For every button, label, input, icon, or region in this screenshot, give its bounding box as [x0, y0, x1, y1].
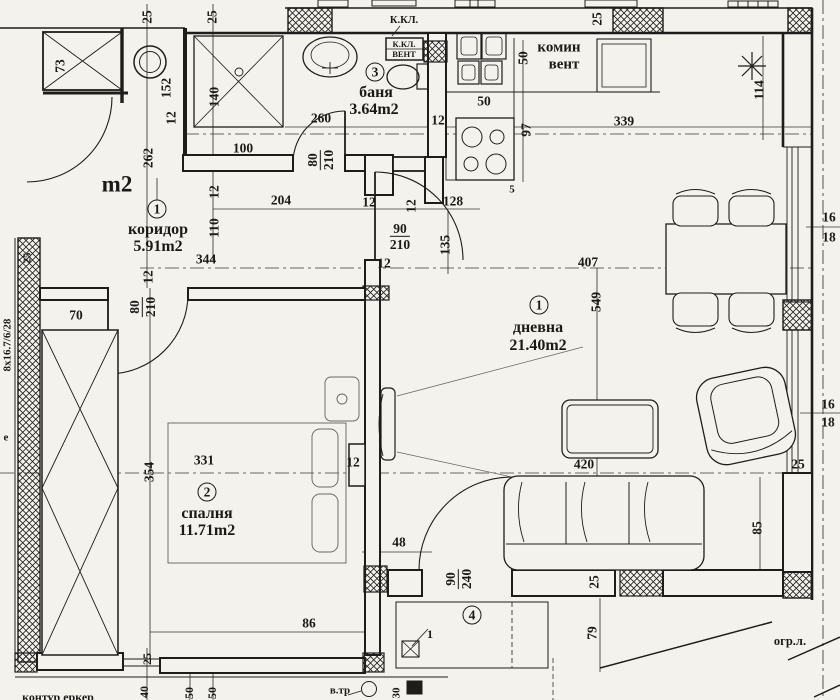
dim-50: 50: [477, 94, 491, 108]
level-16: 16: [822, 210, 836, 224]
dim-420: 420: [574, 457, 594, 471]
dim-100: 100: [233, 141, 253, 155]
room-number-living: 1: [530, 296, 549, 315]
room-label-bedroom: спалня: [181, 506, 232, 522]
dim-25: 25: [140, 10, 154, 24]
dim-50: 50: [183, 687, 195, 699]
dim-114: 114: [752, 80, 766, 100]
dim-25: 25: [141, 653, 153, 665]
room-label-living: дневна: [513, 320, 563, 336]
dim-73: 73: [53, 59, 67, 73]
dim-549: 549: [589, 292, 603, 312]
door-dim-80-210: 80210: [306, 150, 336, 170]
ref-1: 1: [427, 628, 433, 640]
annotation-komin: комин: [537, 41, 580, 56]
dim-260: 260: [311, 111, 331, 125]
dim-135: 135: [438, 235, 452, 255]
door-dim-80-210: 80210: [128, 297, 158, 317]
dim-48: 48: [392, 535, 406, 549]
dim-50: 50: [516, 51, 530, 65]
stair-spec: 8х16.7/6/28: [3, 319, 14, 372]
dim-152: 152: [159, 78, 173, 98]
dim-25: 25: [590, 12, 604, 26]
level-18: 18: [821, 415, 835, 429]
room-number-bedroom: 2: [198, 483, 217, 502]
dim-25: 25: [587, 575, 601, 589]
dim-12: 12: [164, 111, 178, 125]
dim-50: 50: [206, 687, 218, 699]
dim-331: 331: [194, 453, 214, 467]
dim-344: 344: [196, 252, 216, 266]
dim-40: 40: [138, 686, 150, 698]
dim-12: 12: [346, 455, 360, 469]
dim-5: 5: [509, 185, 515, 196]
dim-25: 25: [791, 457, 805, 471]
annotation-ogr-l: огр.л.: [774, 635, 806, 648]
room-area-bath: 3.64m2: [349, 102, 398, 118]
room-area-bedroom: 11.71m2: [179, 523, 235, 539]
annotation-vent-box: ВЕНТ: [392, 50, 416, 59]
dim-70: 70: [69, 308, 83, 322]
floorplan: 25257315214012100262m22603баня3.64m2К.КЛ…: [0, 0, 840, 700]
room-number-corridor: 1: [148, 200, 167, 219]
dim-339: 339: [614, 114, 634, 128]
dim-30: 30: [392, 688, 403, 699]
room-number-terrace: 4: [463, 606, 482, 625]
dim-12: 12: [404, 199, 418, 213]
dim-85: 85: [750, 521, 764, 535]
dim-204: 204: [271, 193, 291, 207]
text-partial: е: [4, 433, 9, 444]
dim-12: 12: [207, 185, 221, 199]
dim-128: 128: [443, 194, 463, 208]
dim-25: 25: [205, 10, 219, 24]
door-dim-90-210: 90210: [390, 222, 410, 252]
dim-86: 86: [302, 616, 316, 630]
dim-110: 110: [207, 218, 221, 238]
dim-12: 12: [141, 270, 155, 284]
annotation-kkl: К.КЛ.: [390, 16, 418, 27]
room-area-living: 21.40m2: [509, 338, 566, 354]
dim-12: 12: [362, 195, 376, 209]
label-layer: 25257315214012100262m22603баня3.64m2К.КЛ…: [0, 0, 840, 700]
dim-12: 12: [377, 256, 391, 270]
annotation-vent: вент: [549, 58, 580, 73]
dim-262: 262: [141, 148, 155, 168]
dim-140: 140: [207, 87, 221, 107]
room-number-bath: 3: [366, 63, 385, 82]
level-18: 18: [822, 230, 836, 244]
dim-97: 97: [519, 123, 533, 137]
annotation-kkl-box: К.КЛ.: [393, 40, 416, 49]
room-area-partial: m2: [102, 173, 133, 196]
level-16: 16: [821, 397, 835, 411]
dim-25: 25: [23, 253, 34, 264]
door-dim-90-240: 90240: [444, 569, 474, 589]
annotation-vtr: в.тр: [330, 686, 350, 697]
dim-407: 407: [578, 255, 598, 269]
annotation-kontur: контур еркер: [22, 691, 94, 700]
dim-79: 79: [585, 626, 599, 640]
room-label-bath: баня: [359, 85, 393, 101]
room-area-corridor: 5.91m2: [133, 239, 182, 255]
room-label-corridor: коридор: [128, 222, 188, 238]
dim-12: 12: [431, 113, 445, 127]
dim-354: 354: [142, 462, 156, 482]
